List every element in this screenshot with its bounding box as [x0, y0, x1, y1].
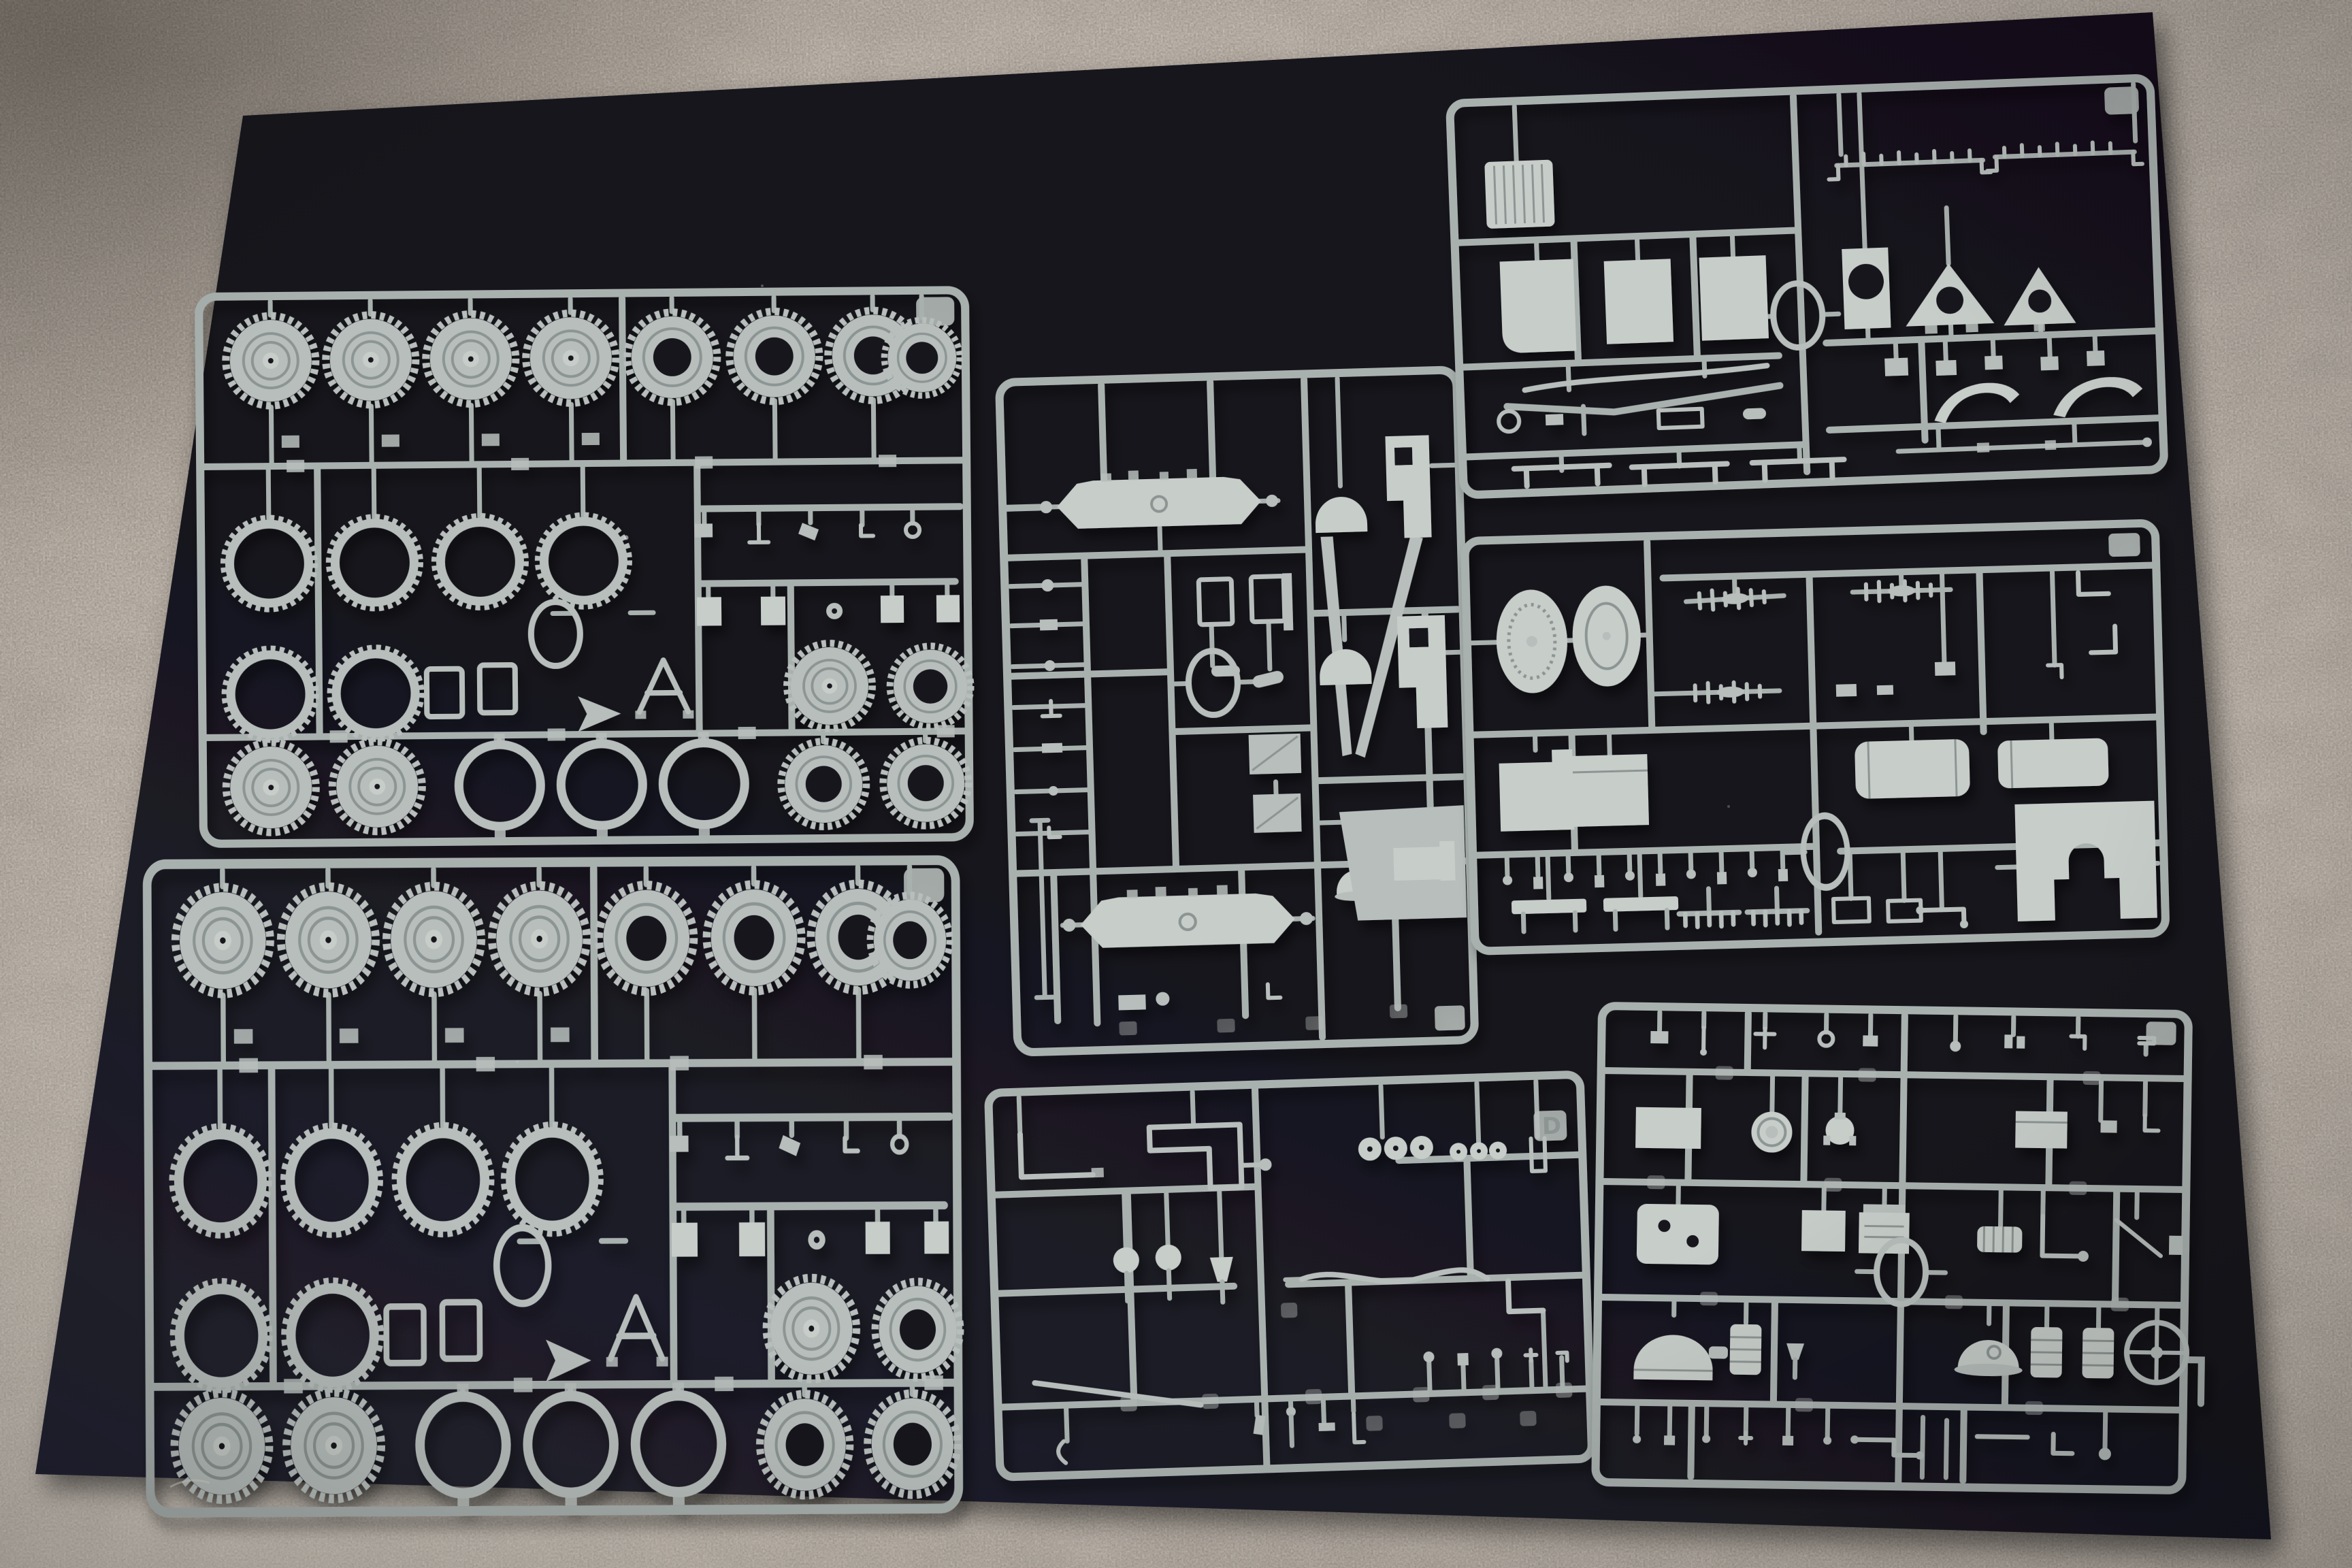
vignette [0, 0, 2352, 1568]
photo-model-kit-sprues: D [0, 0, 2352, 1568]
photo: D [0, 0, 2352, 1568]
